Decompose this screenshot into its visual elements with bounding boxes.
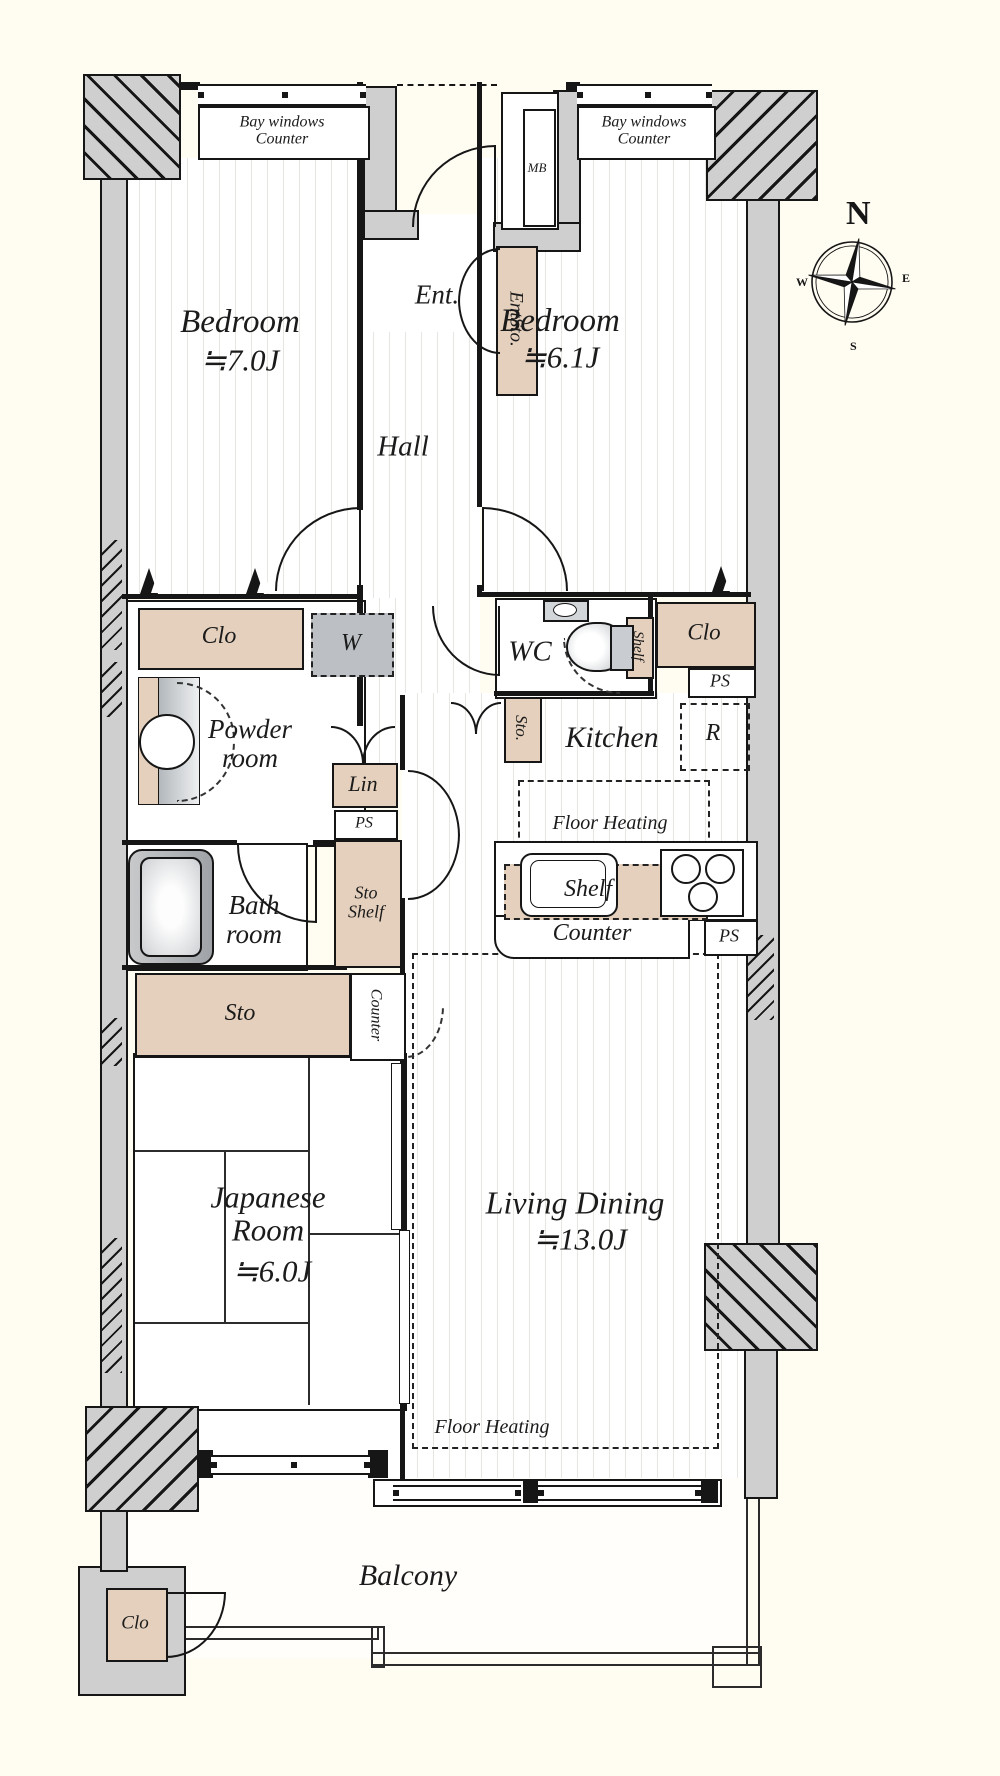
- linen-cabinet-label: Lin: [348, 772, 377, 796]
- closet-bedroom1-label: Clo: [202, 624, 237, 650]
- bay-window-counter-left-label: Bay windowsCounter: [240, 114, 325, 149]
- kitchen-floor-heating-label: Floor Heating: [553, 813, 668, 835]
- pillar-bottom-left: [85, 1406, 199, 1512]
- bay-window-counter-right-label: Bay windowsCounter: [602, 114, 687, 149]
- window-stop: [291, 1462, 297, 1468]
- bedroom1-size: ≒7.0J: [201, 343, 280, 376]
- kitchen-label: Kitchen: [565, 722, 658, 754]
- kitchen-counter-label: Counter: [553, 921, 632, 947]
- bathtub-inner: [140, 857, 202, 957]
- window-stop: [282, 92, 288, 98]
- window-stop: [577, 92, 583, 98]
- japanese-room-window: [211, 1455, 370, 1475]
- stove-burner: [705, 854, 735, 884]
- living-floor-heating-label: Floor Heating: [435, 1417, 550, 1439]
- window-stop: [360, 92, 366, 98]
- tatami-line: [135, 1150, 310, 1152]
- window-stop: [538, 1490, 544, 1496]
- wc-label: WC: [508, 636, 552, 667]
- refrigerator-label: R: [706, 721, 721, 747]
- compass-east-label: E: [902, 271, 910, 285]
- balcony-closet-label: Clo: [121, 1614, 148, 1635]
- balcony-railing: [746, 1493, 760, 1666]
- wc-shelf-label: Shelf: [630, 631, 646, 661]
- pipe-space-top-label: PS: [710, 671, 730, 690]
- compass-south-label: S: [850, 339, 857, 353]
- wall-segment: [400, 695, 405, 770]
- window-stop: [364, 1462, 370, 1468]
- wall-segment: [494, 691, 654, 696]
- balcony-label: Balcony: [359, 1560, 457, 1592]
- bay-window-right: [577, 84, 712, 106]
- stove-burner: [688, 882, 718, 912]
- compass-west-label: W: [796, 275, 808, 289]
- sliding-door-panel: [399, 1230, 410, 1404]
- pipe-space-counter-label: PS: [719, 926, 739, 945]
- washing-machine-label: W: [341, 631, 361, 657]
- entrance-label: Ent.: [415, 280, 459, 309]
- balcony-railing: [371, 1652, 760, 1666]
- pillar-top-left: [83, 74, 181, 180]
- closet-bedroom2-label: Clo: [687, 621, 720, 646]
- tatami-line: [135, 1322, 310, 1324]
- wall-segment: [122, 965, 347, 970]
- sliding-door-panel: [391, 1063, 402, 1230]
- bedroom2-label: Bedroom: [500, 304, 620, 340]
- wall-segment: [523, 1479, 538, 1503]
- right-wall: [746, 193, 780, 1251]
- wall-segment: [122, 594, 362, 599]
- pipe-space-left-label: PS: [355, 814, 373, 831]
- meter-box-label: MB: [528, 161, 547, 175]
- window-stop: [198, 92, 204, 98]
- entrance-door: [412, 145, 496, 227]
- floor-plan: Bay windowsCounter MB Bay windowsCounter: [0, 0, 1000, 1776]
- window-stop: [393, 1490, 399, 1496]
- bath-room-label: Bathroom: [226, 891, 282, 949]
- living-dining-label: Living Dining: [486, 1186, 665, 1221]
- wall-segment: [368, 1450, 388, 1478]
- hanger-mark: [246, 568, 264, 594]
- compass-north-label: N: [846, 195, 871, 232]
- kitchen-shelf-label: Shelf: [564, 877, 612, 903]
- hanger-mark: [140, 568, 158, 594]
- japanese-room-size: ≒6.0J: [233, 1254, 312, 1287]
- living-window-left: [393, 1485, 521, 1501]
- bedroom1-label: Bedroom: [180, 305, 300, 341]
- compass-rose: N E S W: [790, 182, 920, 357]
- powder-room-label: Powderroom: [208, 715, 292, 773]
- hall-storage-label: Sto.: [512, 715, 530, 741]
- porch-dashed-line: [397, 84, 497, 86]
- window-stop: [211, 1462, 217, 1468]
- window-stop: [645, 92, 651, 98]
- wall-hatch: [102, 1018, 122, 1066]
- entry-recess-wall: [363, 210, 419, 240]
- hall-label: Hall: [377, 431, 429, 462]
- stove-burner: [671, 854, 701, 884]
- bedroom2-size: ≒6.1J: [521, 340, 600, 373]
- wall-segment: [477, 592, 751, 597]
- wall-hatch: [102, 1238, 122, 1373]
- counter-vertical-label: Counter: [367, 989, 384, 1041]
- storage-box-label: Sto: [225, 1001, 256, 1027]
- wall-hatch: [102, 662, 122, 717]
- balcony-railing: [712, 1646, 762, 1688]
- window-stop: [706, 92, 712, 98]
- bay-window-left: [198, 84, 366, 106]
- window-stop: [515, 1490, 521, 1496]
- wall-segment: [122, 840, 237, 845]
- japanese-room-label: JapaneseRoom: [210, 1181, 325, 1248]
- living-window-right: [538, 1485, 701, 1501]
- hanger-mark: [712, 566, 730, 592]
- wc-hand-basin-bowl: [553, 603, 577, 617]
- pillar-bottom-right: [704, 1243, 818, 1351]
- balcony-right-wall: [744, 1345, 778, 1499]
- living-dining-size: ≒13.0J: [533, 1222, 627, 1255]
- wall-hatch: [102, 540, 122, 650]
- bath-sto-shelf-label: StoShelf: [348, 884, 384, 923]
- wall-segment: [701, 1479, 718, 1503]
